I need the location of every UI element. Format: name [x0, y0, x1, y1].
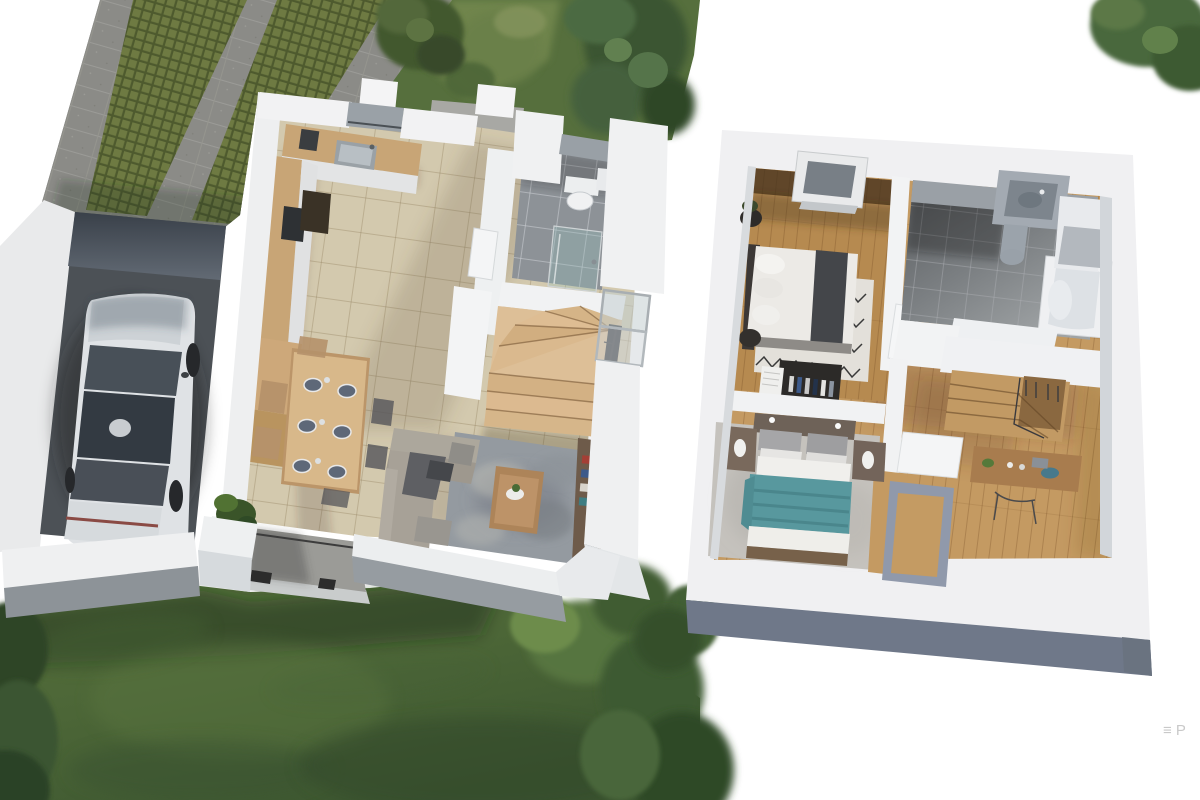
svg-text:≡ P: ≡ P — [1163, 722, 1186, 739]
